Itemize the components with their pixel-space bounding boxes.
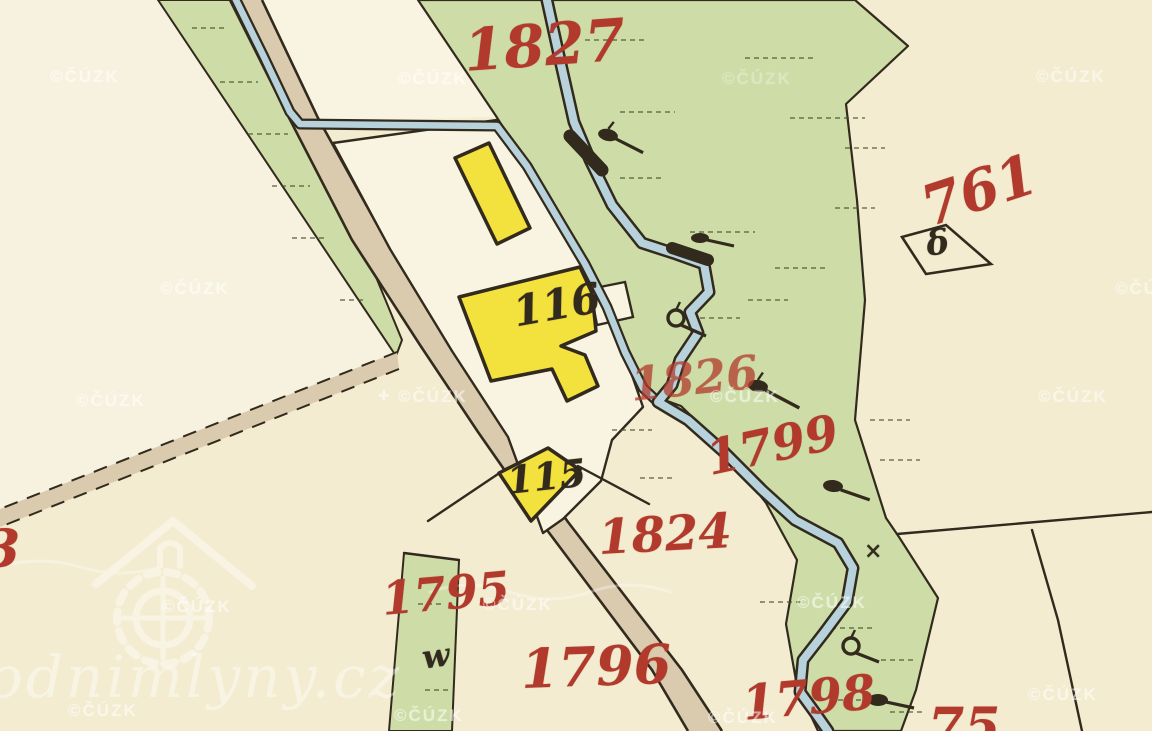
watermark-cuzk: ©ČÚZK [1036,68,1106,85]
parcel-label-1796: 1796 [520,637,672,696]
watermark-cuzk: ©ČÚZK [162,598,232,615]
watermark-cuzk: ©ČÚZK [50,68,120,85]
map-canvas[interactable]: 1827 761 1826 1799 1824 1795 1796 1798 7… [0,0,1152,731]
symbol-delta: δ [924,225,951,262]
watermark-cuzk: ©ČÚZK [1038,388,1108,405]
watermark-cuzk: ©ČÚZK [1115,280,1152,297]
watermark-cuzk: ©ČÚZK [160,280,230,297]
parcel-label-1827: 1827 [462,11,627,80]
watermark-cuzk: ©ČÚZK [797,594,867,611]
building-label-115: 115 [505,454,588,500]
watermark-cuzk: ©ČÚZK [708,709,778,726]
watermark-cuzk: ©ČÚZK [398,388,468,405]
watermark-cuzk: ©ČÚZK [76,392,146,409]
map-layer [0,0,1152,731]
parcel-label-75-partial: 75 [928,702,1000,731]
watermark-domain: odnimlyny.cz [0,648,402,706]
symbol-meadow: w [420,638,452,674]
watermark-cuzk: ©ČÚZK [710,388,780,405]
watermark-cuzk: ©ČÚZK [394,707,464,724]
watermark-cuzk: ©ČÚZK [483,596,553,613]
watermark-plus: + [378,386,392,406]
watermark-cuzk: ©ČÚZK [1028,686,1098,703]
watermark-cuzk: ©ČÚZK [398,70,468,87]
parcel-label-3-partial: 3 [0,524,20,576]
watermark-cuzk: ©ČÚZK [722,70,792,87]
symbol-cross: × [864,540,882,562]
parcel-label-1824: 1824 [597,507,733,562]
